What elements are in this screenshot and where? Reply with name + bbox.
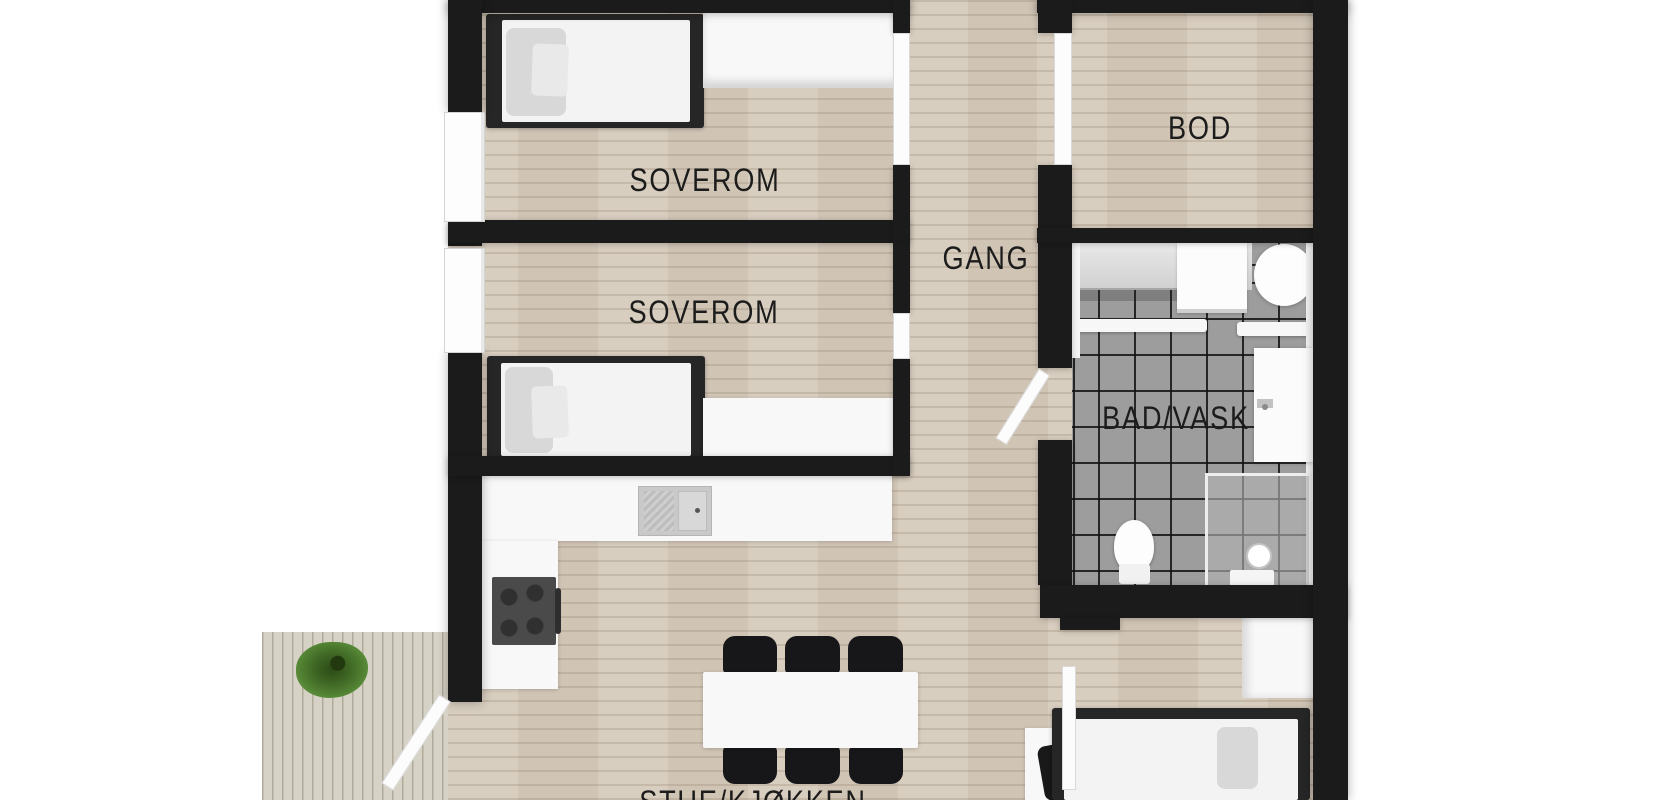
bathroom-vanity [1254, 348, 1313, 462]
wall-bedrooms-right-c [893, 243, 910, 313]
wall-right [1313, 0, 1348, 800]
dining-chair [785, 746, 840, 784]
wall-bathroom-bottom [1040, 585, 1348, 618]
room-label-hallway: GANG [943, 242, 1030, 274]
wall-storage-bathroom [1037, 228, 1313, 243]
room-label-bathroom: BAD/VASK [1102, 402, 1250, 434]
wardrobe-bedroom-1 [703, 13, 897, 88]
room-label-living-kitchen: STUE/KJØKKEN [639, 786, 866, 800]
dining-chair [848, 636, 903, 674]
sink-faucet-icon [695, 508, 700, 513]
shower-ledge [1230, 570, 1274, 586]
wall-top-right [1037, 0, 1348, 13]
toilet-base [1119, 564, 1150, 584]
bench-bedroom-2 [703, 398, 893, 458]
wall-bathroom-bottom-notch [1060, 618, 1120, 630]
bed-3-pillow [1217, 727, 1258, 789]
kitchen-sink [638, 486, 712, 536]
wall-hall-storage-a [1038, 0, 1072, 33]
wall-bedrooms-right-b [893, 165, 910, 243]
floor-plan: SOVEROM SOVEROM GANG BOD BAD/VASK STUE/K… [0, 0, 1670, 800]
dining-chair [723, 636, 777, 674]
bed-3-mattress [1064, 719, 1298, 800]
wall-bathroom-left-b [1038, 440, 1072, 585]
room-label-bedroom-1: SOVEROM [630, 164, 781, 196]
wall-bedroom2-kitchen [448, 456, 910, 476]
door-bedroom-1 [893, 33, 910, 165]
wardrobe-bedroom-3 [1242, 614, 1313, 698]
sink-drainer [644, 491, 674, 531]
bed-1-pillow-small [531, 43, 569, 96]
door-bedroom-3 [1062, 666, 1076, 790]
wall-left-c [448, 352, 482, 702]
dining-chair [723, 746, 777, 784]
bathroom-counter-shadow [1080, 288, 1177, 301]
door-storage [1054, 33, 1072, 165]
wall-bedroom-divider [448, 220, 910, 243]
stove-handle [555, 588, 561, 634]
wall-bedrooms-right-d [893, 359, 910, 476]
sink-basin [678, 491, 707, 531]
room-label-storage: BOD [1168, 112, 1232, 144]
bathroom-rail-right [1237, 322, 1313, 336]
washing-machine [1254, 244, 1314, 306]
dining-chair [849, 746, 903, 784]
bathroom-rail-left [1063, 319, 1207, 332]
wall-left-a [448, 0, 482, 112]
shower-head-icon [1246, 543, 1272, 569]
room-label-bedroom-2: SOVEROM [629, 296, 780, 328]
dining-table [703, 672, 918, 748]
wall-bedrooms-right-a [893, 0, 910, 33]
wall-bathroom-left-a [1038, 243, 1072, 368]
bathroom-wall-trim-left [1072, 243, 1080, 358]
door-bedroom-2 [893, 313, 910, 359]
bed-2-pillow-small [531, 385, 569, 438]
window-bedroom-2 [444, 248, 485, 353]
dining-chair [785, 636, 840, 674]
window-bedroom-1 [444, 112, 485, 222]
laundry-sink-box [1177, 243, 1247, 313]
wall-top-left [448, 0, 910, 13]
stove-cooktop [492, 577, 556, 645]
vanity-drain-icon [1262, 404, 1268, 410]
